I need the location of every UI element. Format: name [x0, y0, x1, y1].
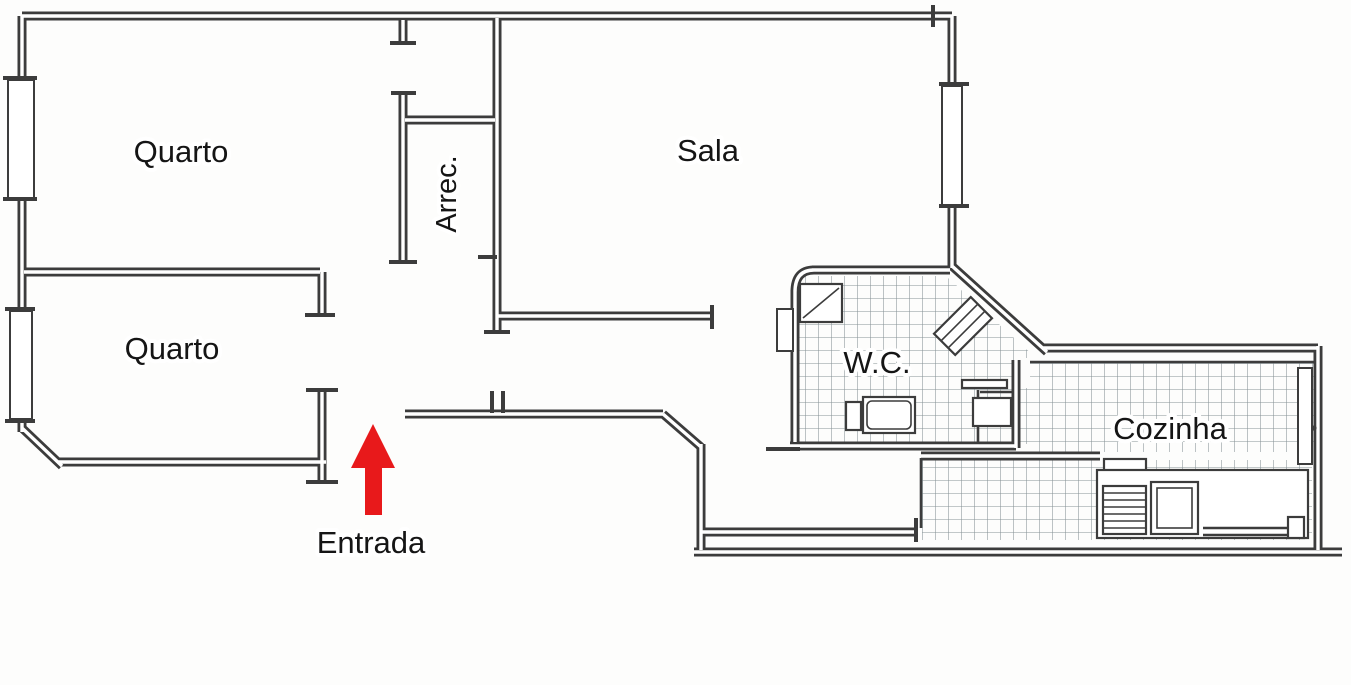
- room-label-quarto-2: Quarto: [125, 331, 220, 366]
- door-handle-icon: [1311, 425, 1316, 430]
- window: [10, 311, 32, 419]
- room-label-cozinha: Cozinha: [1113, 411, 1227, 446]
- entrance-label: Entrada: [317, 525, 426, 560]
- kitchen-fixtures: [1097, 459, 1308, 538]
- window: [777, 309, 793, 351]
- room-label-wc: W.C.: [843, 345, 910, 380]
- kitchen-sink: [1151, 482, 1198, 534]
- toilet: [846, 402, 861, 430]
- wc-shelf: [962, 380, 1007, 388]
- room-label-arrec: Arrec.: [431, 155, 463, 232]
- kitchen-door: [1298, 368, 1312, 464]
- floor-plan-page: Quarto Sala Arrec. Quarto W.C. Cozinha E…: [0, 0, 1351, 685]
- washing-machine: [973, 398, 1011, 426]
- radiator-end: [1288, 517, 1304, 538]
- bathtub: [863, 397, 915, 433]
- floor-plan-svg: Quarto Sala Arrec. Quarto W.C. Cozinha E…: [0, 0, 1351, 685]
- window: [942, 86, 962, 205]
- room-label-quarto-1: Quarto: [134, 134, 229, 169]
- room-label-sala: Sala: [677, 133, 740, 168]
- window: [8, 80, 34, 198]
